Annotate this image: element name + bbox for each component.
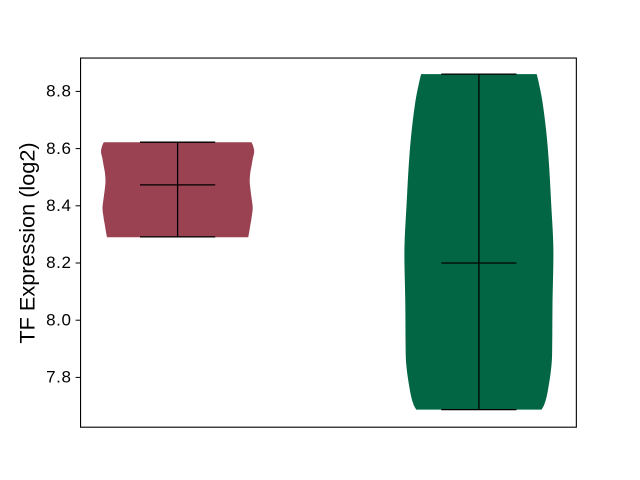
svg-text:8.4: 8.4 <box>46 196 71 215</box>
svg-text:TF Expression (log2): TF Expression (log2) <box>15 142 40 343</box>
svg-text:8.8: 8.8 <box>46 82 71 101</box>
svg-text:7.8: 7.8 <box>46 368 71 387</box>
svg-text:8.2: 8.2 <box>46 253 71 272</box>
svg-text:8.6: 8.6 <box>46 139 71 158</box>
svg-text:8.0: 8.0 <box>46 310 71 329</box>
